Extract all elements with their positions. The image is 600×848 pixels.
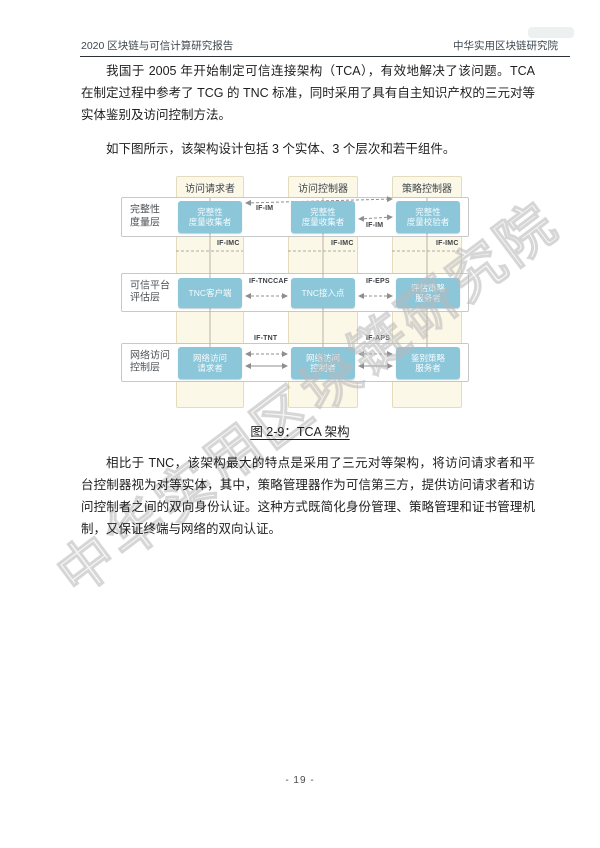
node-tnc-client: TNC客户端 [178, 278, 242, 308]
header-report-title: 2020 区块链与可信计算研究报告 [81, 38, 233, 53]
figure-caption: 图 2-9：TCA 架构 [0, 421, 600, 440]
node-network-access-requester: 网络访问 请求者 [178, 347, 242, 379]
header-rule [80, 56, 570, 57]
paragraph-figure-lead: 如下图所示，该架构设计包括 3 个实体、3 个层次和若干组件。 [81, 138, 535, 160]
interface-label-if-tnt: IF-TNT [254, 335, 277, 342]
page-header: 2020 区块链与可信计算研究报告 中华实用区块链研究院 [81, 38, 558, 53]
node-authentication-policy-server: 鉴别策略 服务者 [396, 347, 460, 379]
interface-label-if-im-1: IF-IM [256, 205, 273, 212]
interface-label-if-tnccaf: IF-TNCCAF [249, 278, 288, 285]
page-number: - 19 - [0, 775, 600, 786]
interface-label-if-imc-3: IF-IMC [436, 240, 459, 247]
interface-label-if-aps: IF-APS [366, 335, 390, 342]
document-page: 中华实用区块链研究院 2020 区块链与可信计算研究报告 中华实用区块链研究院 … [0, 0, 600, 848]
node-tnc-access-point: TNC接入点 [291, 278, 355, 308]
interface-label-if-im-2: IF-IM [366, 222, 383, 229]
paragraph-comparison: 相比于 TNC，该架构最大的特点是采用了三元对等架构，将访问请求者和平台控制器视… [81, 452, 535, 540]
node-integrity-measurement-collector-2: 完整性 度量收集者 [291, 201, 355, 233]
node-evaluation-policy-server: 评估策略 服务者 [396, 278, 460, 308]
paragraph-intro: 我国于 2005 年开始制定可信连接架构（TCA），有效地解决了该问题。TCA … [81, 60, 535, 126]
interface-label-if-eps: IF-EPS [366, 278, 390, 285]
node-integrity-measurement-verifier: 完整性 度量校验者 [396, 201, 460, 233]
scan-artifact [528, 27, 574, 38]
node-integrity-measurement-collector-1: 完整性 度量收集者 [178, 201, 242, 233]
interface-label-if-imc-2: IF-IMC [331, 240, 354, 247]
header-institute-name: 中华实用区块链研究院 [453, 38, 558, 53]
node-network-access-controller: 网络访问 控制者 [291, 347, 355, 379]
interface-label-if-imc-1: IF-IMC [217, 240, 240, 247]
tca-architecture-diagram: 访问请求者 访问控制器 策略控制器 完整性 度量层 可信平台 评估层 网络访问 … [121, 172, 470, 412]
